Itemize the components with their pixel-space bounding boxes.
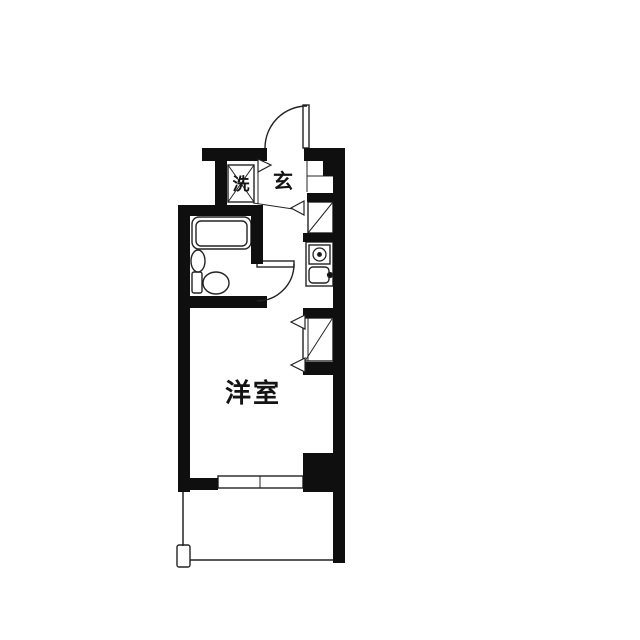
wall-shoe-closet-top [307, 193, 333, 202]
label-western-room: 洋室 [225, 378, 281, 409]
sink [309, 267, 329, 283]
balcony-post [177, 545, 190, 567]
label-entrance: 玄 [273, 169, 293, 193]
washbasin [191, 250, 205, 272]
bathtub-inner [196, 221, 247, 246]
wall-closet-top [303, 308, 333, 318]
wall-bath-top [178, 205, 263, 216]
wall-left [178, 205, 190, 492]
wall-bottom-left [190, 478, 218, 490]
toilet-tank [192, 272, 202, 293]
wall-bath-right [251, 214, 263, 264]
sink-faucet [328, 273, 333, 278]
wall-bottom-right-block [303, 453, 345, 492]
stove-burner-dot [318, 253, 322, 257]
wall-bath-bottom [178, 296, 267, 308]
wall-closet-bottom [303, 362, 333, 375]
toilet-bowl [203, 272, 229, 294]
wall-right [333, 158, 345, 563]
entrance-door-leaf [303, 105, 309, 148]
floor-plan: 洗玄洋室 [0, 0, 640, 640]
wall-laundry-left [215, 158, 227, 207]
wall-shoe-closet-bottom [303, 233, 333, 242]
wall-top-left [202, 148, 267, 161]
label-laundry: 洗 [233, 174, 250, 195]
floor-plan-page: 洗玄洋室 [0, 0, 640, 640]
